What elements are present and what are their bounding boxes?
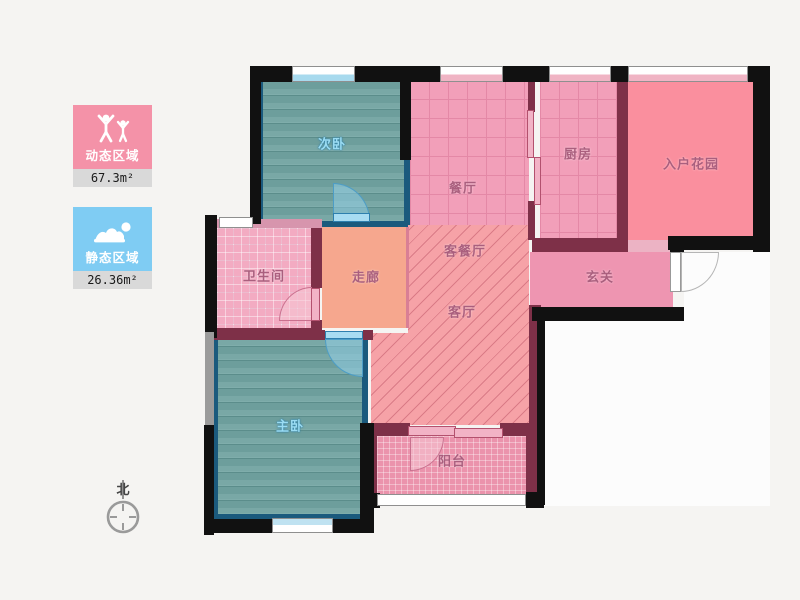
- doorway-sill: [628, 240, 670, 252]
- wall: [204, 519, 272, 533]
- legend-dynamic-value: 67.3m²: [73, 169, 152, 187]
- room-dining[interactable]: [410, 80, 529, 225]
- wall: [406, 227, 409, 328]
- wall: [532, 238, 628, 252]
- door-panel: [333, 213, 370, 222]
- wall: [205, 332, 214, 427]
- room-label-corridor: 走廊: [352, 267, 380, 286]
- room-label-master-bedroom: 主卧: [276, 416, 304, 435]
- door-panel: [325, 331, 363, 339]
- wall: [526, 492, 544, 508]
- wall: [611, 66, 628, 82]
- window: [292, 66, 355, 82]
- room-label-living-dining: 客餐厅: [444, 241, 486, 260]
- people-arms-up-icon: [90, 113, 136, 143]
- window: [440, 66, 503, 82]
- sliding-door-panel: [454, 428, 503, 438]
- window: [272, 518, 333, 533]
- room-label-entry-garden: 入户花园: [663, 154, 719, 173]
- wall: [213, 330, 325, 340]
- legend-static-value: 26.36m²: [73, 271, 152, 289]
- person-lying-icon: [91, 219, 135, 245]
- wall: [670, 236, 684, 252]
- window: [219, 217, 253, 228]
- room-label-second-bedroom: 次卧: [318, 134, 346, 153]
- wall: [617, 73, 628, 240]
- floor-plan-page: 次卧 餐厅 厨房 入户花园 卫生间 走廊 客餐厅 客厅 玄关 主卧 阳台: [0, 0, 800, 600]
- wall: [355, 66, 440, 82]
- wall: [311, 222, 322, 288]
- exterior-area: [684, 252, 770, 506]
- legend-dynamic-label: 动态区域: [85, 145, 139, 169]
- entry-door-panel: [670, 252, 681, 292]
- wall: [528, 201, 535, 240]
- wall: [363, 330, 373, 340]
- door-panel: [311, 288, 320, 321]
- legend-static-area: 静态区域: [73, 207, 152, 271]
- room-label-living: 客厅: [448, 302, 476, 321]
- wall: [205, 215, 217, 338]
- window: [628, 66, 748, 82]
- wall: [753, 66, 770, 252]
- wall: [503, 66, 549, 82]
- window: [377, 494, 526, 506]
- room-label-kitchen: 厨房: [564, 144, 592, 163]
- sliding-door-panel: [534, 157, 541, 205]
- room-label-balcony: 阳台: [438, 451, 466, 470]
- wall: [532, 307, 684, 321]
- window: [549, 66, 611, 82]
- room-label-hallway: 玄关: [586, 267, 614, 286]
- wall: [400, 66, 411, 160]
- exterior-area: [543, 321, 684, 506]
- room-label-dining: 餐厅: [449, 178, 477, 197]
- compass-north-icon: 北: [98, 478, 150, 536]
- wall: [537, 313, 545, 505]
- sliding-door-panel: [527, 110, 534, 158]
- room-label-bathroom: 卫生间: [243, 266, 285, 285]
- compass-north-label: 北: [116, 483, 129, 498]
- wall: [360, 423, 374, 533]
- wall: [250, 66, 261, 224]
- sliding-door-panel: [408, 426, 456, 436]
- legend-static-label: 静态区域: [85, 247, 139, 271]
- legend-dynamic-area: 动态区域: [73, 105, 152, 169]
